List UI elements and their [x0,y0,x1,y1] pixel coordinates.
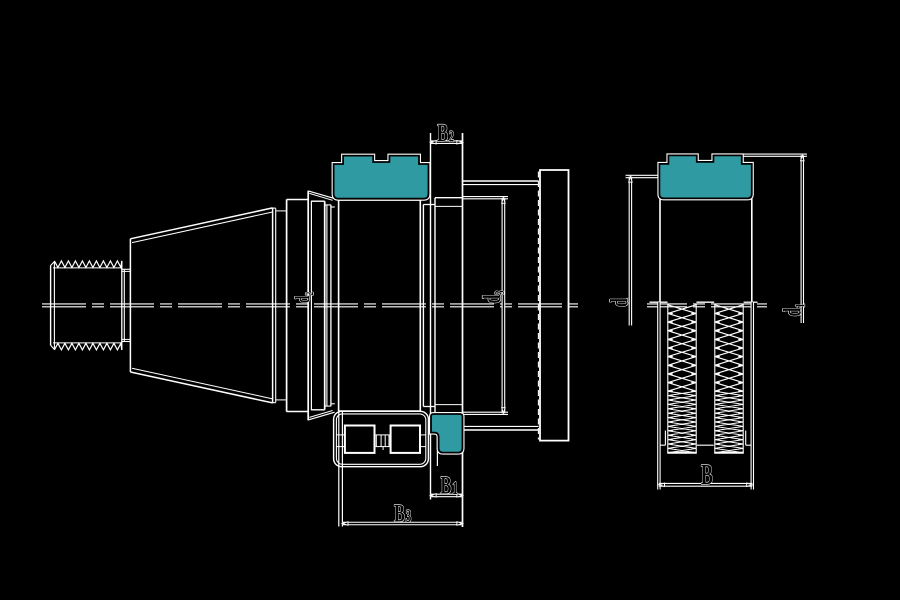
svg-text:d: d [605,298,634,307]
svg-text:3: 3 [406,508,412,527]
svg-text:d: d [477,294,506,303]
svg-text:1: 1 [452,480,458,499]
svg-text:d: d [290,295,314,303]
svg-text:B: B [394,499,405,528]
svg-text:B: B [441,471,452,500]
svg-text:2: 2 [449,127,454,145]
svg-text:3: 3 [492,290,507,295]
svg-text:B: B [437,118,448,147]
svg-text:B: B [701,460,713,491]
svg-text:d: d [778,307,807,316]
svg-text:1: 1 [792,303,807,308]
svg-text:2: 2 [303,292,316,296]
